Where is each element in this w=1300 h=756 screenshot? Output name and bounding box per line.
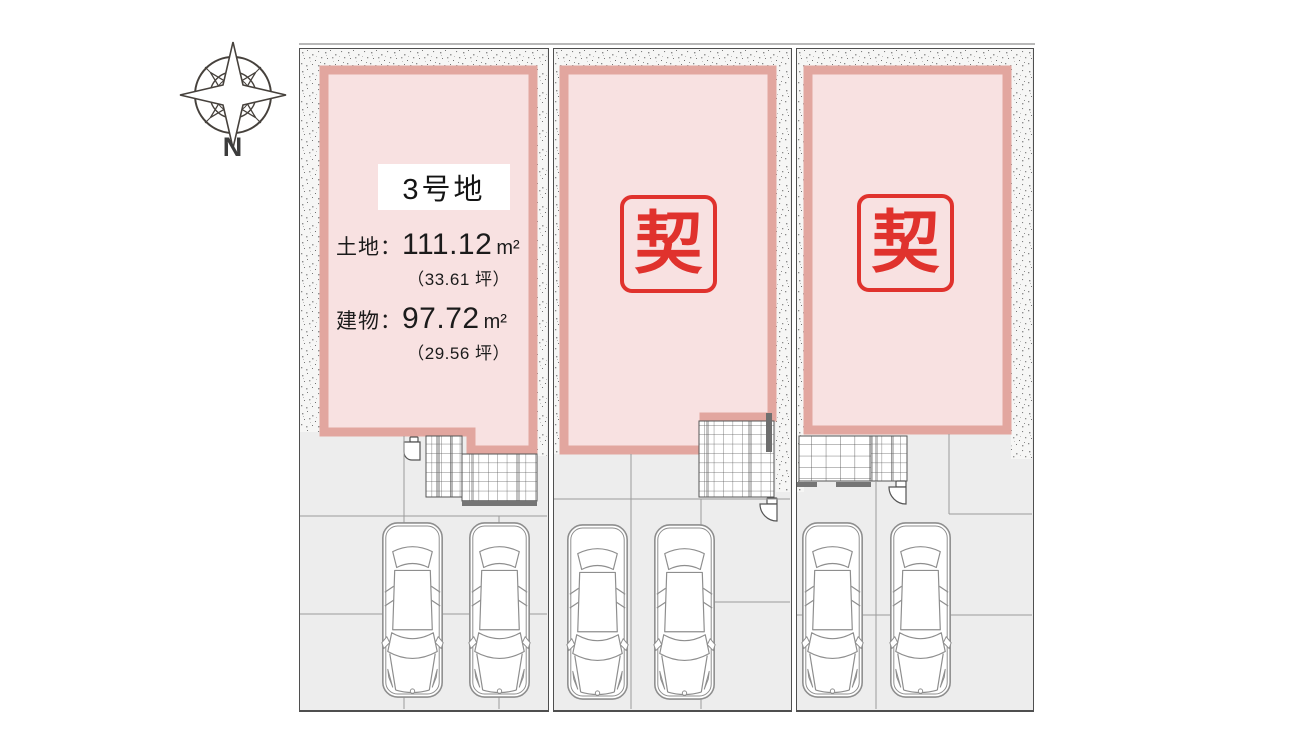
sold-stamp: 契 [857,194,954,292]
car-icon [382,523,443,697]
parcel-right-drawing [797,49,1032,710]
building-tsubo: （29.56 坪） [336,339,520,364]
top-boundary-line [299,43,1035,45]
water-heater-icon [404,437,420,460]
front-wall [797,482,817,487]
building-label: 建物： [336,305,402,335]
side-wall [766,413,772,452]
parcel-lot3[interactable] [299,48,549,712]
parcel-middle-sold[interactable] [553,48,792,712]
site-plan: N [0,0,1300,756]
car-icon [469,523,530,697]
entrance-tiles [699,413,774,497]
sold-stamp: 契 [620,195,717,293]
land-area-row: 土地： 111.12 m² [336,228,520,262]
building-unit: m² [484,311,507,334]
gate-icon [760,498,777,521]
land-tsubo: （33.61 坪） [336,265,520,290]
gate-icon [889,481,906,504]
car-icon [802,523,863,697]
entrance-tiles [797,436,907,487]
lot-title: 3号地 [378,164,510,210]
porch-step [462,501,537,506]
front-wall [836,482,871,487]
land-label: 土地： [336,231,402,261]
north-label: N [208,132,258,163]
lot-info-panel: 土地： 111.12 m² （33.61 坪） 建物： 97.72 m² （29… [336,228,520,376]
land-value: 111.12 [402,228,492,262]
parcel-lot3-drawing [300,49,547,710]
parcel-middle-drawing [554,49,790,710]
land-unit: m² [496,237,519,260]
parcel-right-sold[interactable] [796,48,1034,712]
car-icon [890,523,951,697]
building-value: 97.72 [402,302,480,336]
car-icon [567,525,628,699]
building-area-row: 建物： 97.72 m² [336,302,520,336]
car-icon [654,525,715,699]
